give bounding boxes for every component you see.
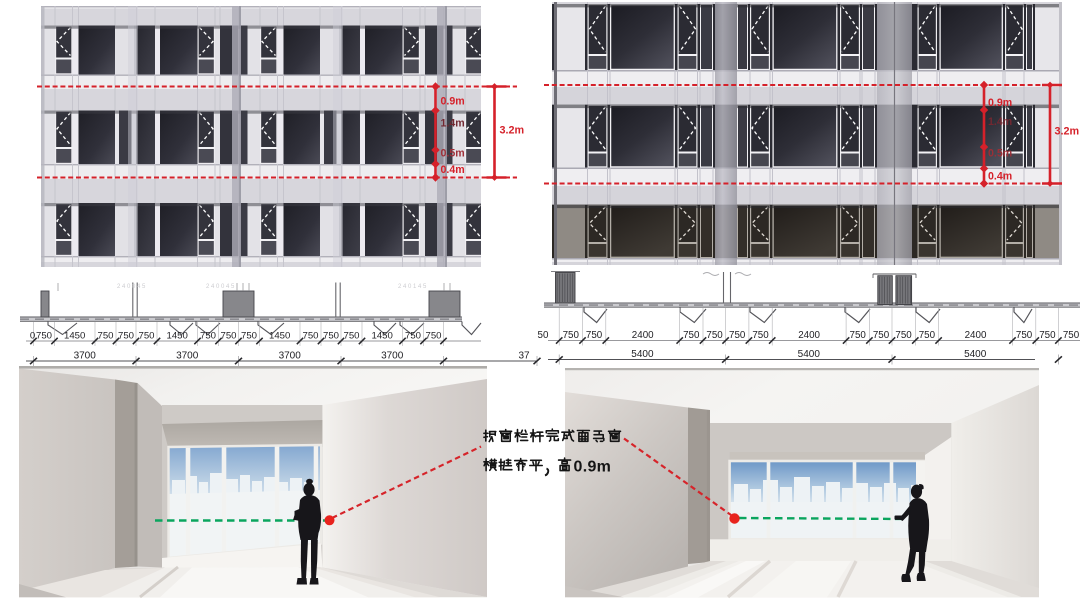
svg-text:3700: 3700: [74, 351, 97, 362]
svg-text:3.2m: 3.2m: [1055, 126, 1080, 138]
svg-text:1450: 1450: [64, 331, 85, 342]
svg-text:750: 750: [220, 331, 236, 342]
svg-text:750: 750: [425, 331, 441, 342]
svg-text:750: 750: [563, 330, 580, 341]
svg-text:750: 750: [586, 330, 603, 341]
svg-text:750: 750: [1063, 330, 1080, 341]
svg-text:1.4m: 1.4m: [441, 118, 465, 130]
svg-text:0.4m: 0.4m: [441, 164, 465, 176]
svg-text:750: 750: [241, 331, 257, 342]
svg-text:750: 750: [200, 331, 216, 342]
svg-text:750: 750: [752, 330, 769, 341]
svg-text:0.5m: 0.5m: [988, 148, 1012, 160]
svg-text:5400: 5400: [631, 349, 654, 360]
svg-text:2 4 0 1 4 5: 2 4 0 1 4 5: [398, 284, 427, 290]
svg-text:2400: 2400: [798, 330, 820, 341]
svg-text:750: 750: [895, 330, 912, 341]
svg-text:2 4 0 0 4 5: 2 4 0 0 4 5: [206, 284, 235, 290]
svg-text:0: 0: [30, 331, 35, 342]
svg-text:750: 750: [36, 331, 52, 342]
svg-text:0.5m: 0.5m: [441, 147, 465, 159]
svg-text:1450: 1450: [269, 331, 290, 342]
svg-text:750: 750: [729, 330, 746, 341]
svg-text:750: 750: [919, 330, 936, 341]
svg-text:750: 750: [850, 330, 867, 341]
svg-text:750: 750: [873, 330, 890, 341]
svg-text:750: 750: [323, 331, 339, 342]
svg-text:750: 750: [706, 330, 723, 341]
svg-text:0.9m: 0.9m: [441, 96, 465, 108]
svg-text:2400: 2400: [965, 330, 987, 341]
svg-text:1450: 1450: [167, 331, 188, 342]
svg-text:0.4m: 0.4m: [988, 171, 1012, 183]
svg-text:750: 750: [302, 331, 318, 342]
svg-text:0.9m: 0.9m: [988, 97, 1012, 109]
svg-text:5400: 5400: [964, 349, 987, 360]
svg-text:1.4m: 1.4m: [988, 116, 1012, 128]
svg-text:750: 750: [1016, 330, 1033, 341]
svg-text:2 4 0 0 4 5: 2 4 0 0 4 5: [117, 284, 146, 290]
svg-text:37: 37: [518, 351, 530, 362]
svg-text:1450: 1450: [372, 331, 393, 342]
svg-text:750: 750: [1039, 330, 1056, 341]
svg-text:3700: 3700: [279, 351, 302, 362]
svg-text:3700: 3700: [381, 351, 404, 362]
svg-text:3700: 3700: [176, 351, 199, 362]
svg-text:750: 750: [683, 330, 700, 341]
svg-text:50: 50: [538, 330, 549, 341]
svg-text:3.2m: 3.2m: [500, 125, 525, 137]
svg-text:5400: 5400: [798, 349, 821, 360]
svg-text:0.9m: 0.9m: [574, 459, 612, 476]
svg-text:750: 750: [97, 331, 113, 342]
svg-text:750: 750: [405, 331, 421, 342]
svg-text:2400: 2400: [632, 330, 654, 341]
svg-text:750: 750: [343, 331, 359, 342]
svg-text:750: 750: [118, 331, 134, 342]
svg-text:750: 750: [138, 331, 154, 342]
